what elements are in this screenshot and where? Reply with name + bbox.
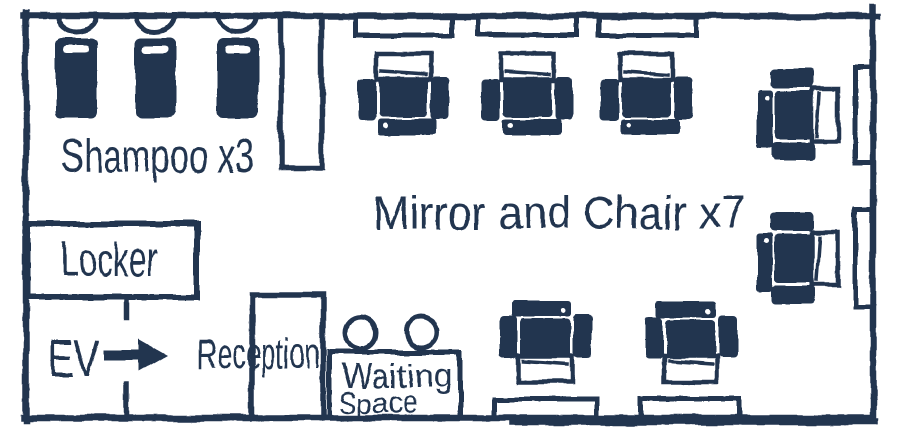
svg-text:Shampoo x3: Shampoo x3 <box>61 129 254 182</box>
svg-text:Locker: Locker <box>60 234 157 287</box>
svg-text:Reception: Reception <box>197 330 320 378</box>
svg-text:Space: Space <box>339 385 417 420</box>
svg-text:Mirror and Chair x7: Mirror and Chair x7 <box>373 186 745 239</box>
svg-text:EV: EV <box>49 330 99 388</box>
